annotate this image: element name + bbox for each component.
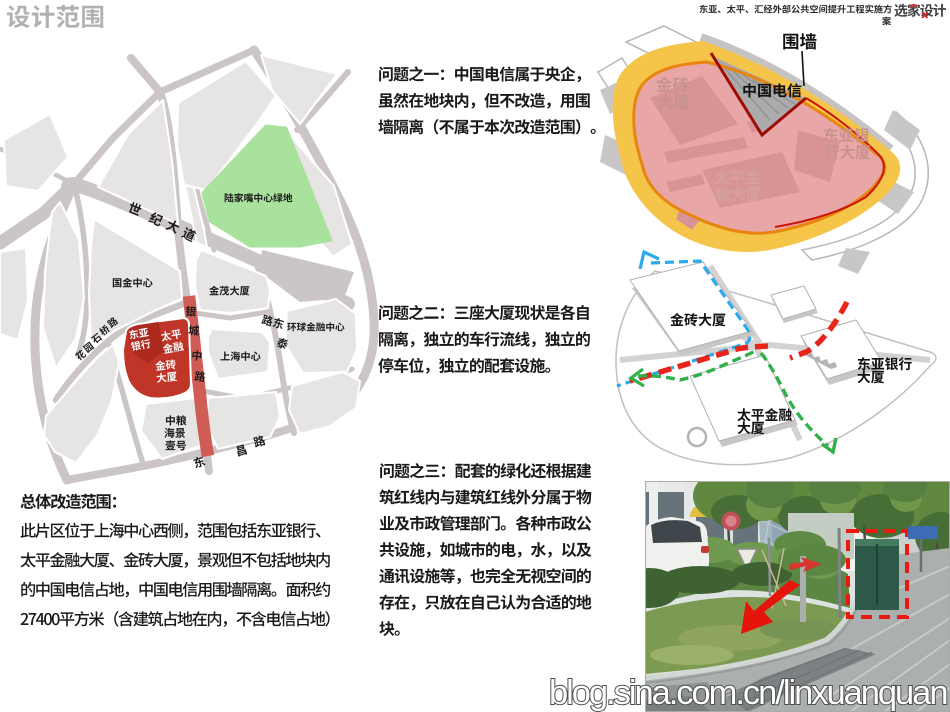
svg-text:blog.sina.com.cn/linxuanquan: blog.sina.com.cn/linxuanquan (549, 674, 948, 712)
